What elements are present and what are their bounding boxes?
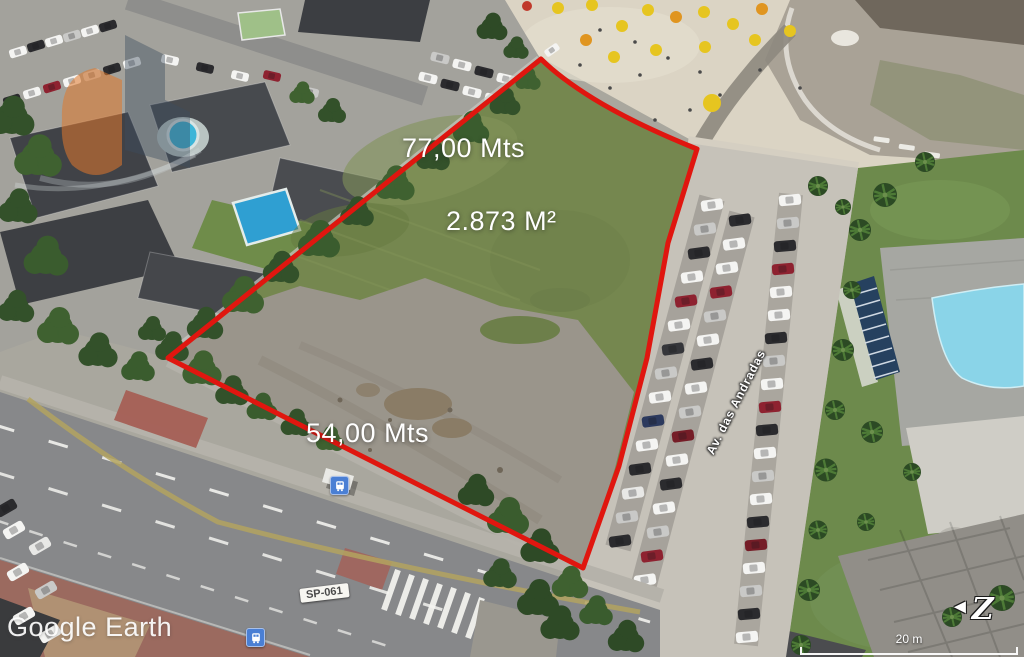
brand-logo-watermark (30, 28, 210, 193)
scale-bar-line (800, 647, 1018, 655)
measurement-area: 2.873 M² (446, 206, 557, 237)
compass-letter: Z (972, 592, 994, 627)
bus-stop-icon (246, 628, 265, 647)
compass-arrow-icon: ◄ (950, 596, 970, 618)
google-earth-map-canvas[interactable]: 77,00 Mts 2.873 M² 54,00 Mts Av. das And… (0, 0, 1024, 657)
measurement-side-length: 54,00 Mts (306, 418, 429, 449)
google-earth-watermark: Google Earth (7, 612, 172, 643)
scale-bar-label: 20 m (800, 632, 1018, 646)
bus-stop-icon (330, 476, 349, 495)
scale-bar: 20 m (800, 632, 1018, 655)
compass-north-indicator: ◄Z (950, 592, 994, 627)
measurement-front-length: 77,00 Mts (402, 133, 525, 164)
